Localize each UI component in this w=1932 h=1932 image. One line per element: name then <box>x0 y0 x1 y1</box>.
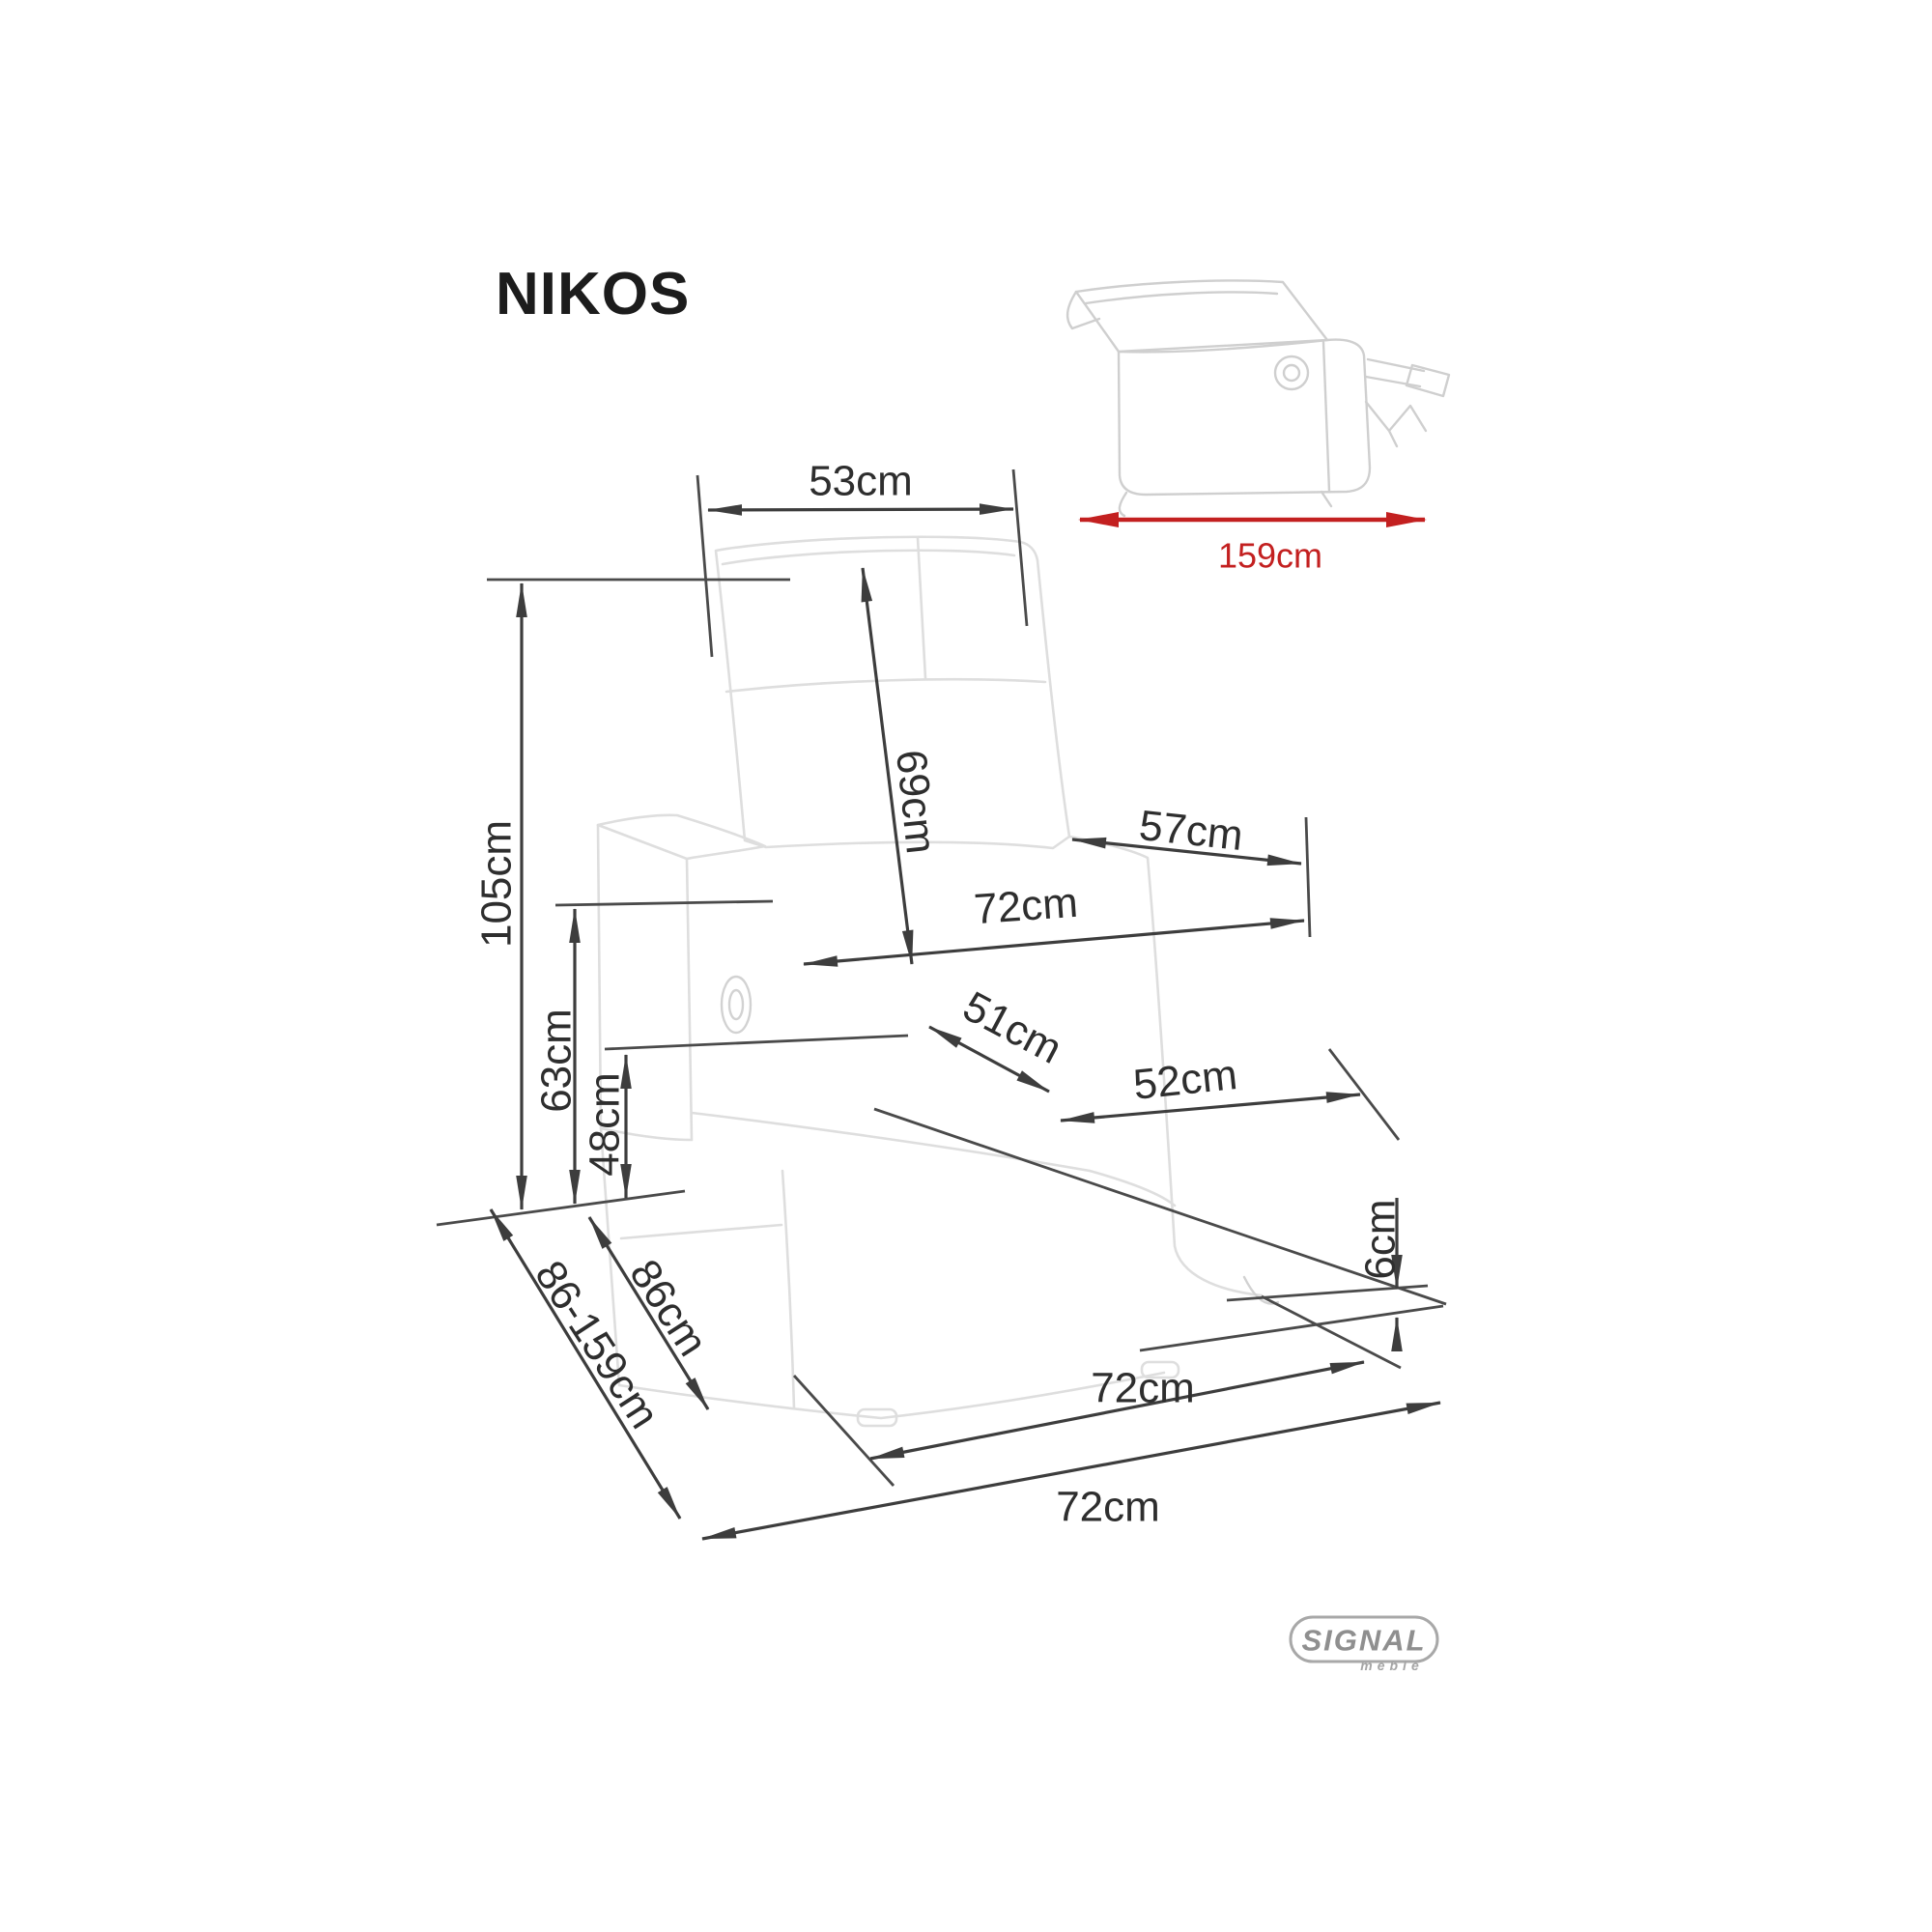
dim-width-at-arms: 72cm <box>804 879 1304 964</box>
dim-total-height: 105cm <box>473 583 523 1209</box>
sketch-backrest-seam-vertical <box>918 538 925 678</box>
sketch-recliner-lever-inner <box>729 990 743 1019</box>
thumb-body <box>1119 340 1370 495</box>
dim-ground-clearance-label: 6cm <box>1357 1199 1405 1279</box>
thumb-lever-circle-inner <box>1284 365 1299 381</box>
ext-right-arm-back <box>1306 817 1310 937</box>
brand-logo: SIGNAL meble <box>1291 1617 1437 1673</box>
dim-width-at-arms-label: 72cm <box>973 879 1080 933</box>
dim-armrest-height: 63cm <box>533 909 581 1204</box>
ext-backrest-right <box>1013 469 1027 626</box>
dimension-diagram-page: NIKOS 159cm 53cm 69cm 105cm <box>0 0 1932 1932</box>
logo-name: SIGNAL <box>1301 1624 1426 1658</box>
dimension-annotations: 53cm 69cm 105cm 63cm 48cm 57cm 72cm <box>473 458 1441 1540</box>
dim-total-height-label: 105cm <box>473 820 521 948</box>
dim-seat-depth: 51cm <box>929 982 1069 1092</box>
ext-seat-top <box>605 1036 908 1049</box>
sketch-left-armrest-top <box>598 815 765 859</box>
ext-ground-left <box>437 1191 685 1225</box>
dim-reclined-length-label: 159cm <box>1218 536 1322 576</box>
sketch-recliner-lever <box>722 977 751 1033</box>
thumb-mechanism <box>1366 402 1426 446</box>
dim-base-width-label: 72cm <box>1091 1365 1195 1412</box>
logo-tagline: meble <box>1360 1658 1423 1673</box>
reclined-side-view-sketch <box>1067 280 1449 516</box>
dim-backrest-length: 69cm <box>863 568 945 964</box>
thumb-headrest-flap <box>1067 292 1099 328</box>
dim-back-to-arm-label: 57cm <box>1137 802 1245 860</box>
dim-ground-clearance: 6cm <box>1357 1198 1405 1341</box>
ext-seat-width-right <box>1329 1049 1399 1140</box>
dim-seat-height-label: 48cm <box>582 1072 629 1177</box>
thumb-body-front-edge <box>1323 342 1329 491</box>
sketch-backrest-piping <box>723 551 1014 564</box>
chair-sketch <box>598 537 1278 1426</box>
dim-overall-width: 72cm <box>702 1403 1440 1539</box>
thumb-footrest <box>1366 359 1424 386</box>
product-title: NIKOS <box>496 261 690 327</box>
dim-reclined-length: 159cm <box>1080 520 1425 576</box>
thumb-lever-circle <box>1275 356 1308 389</box>
dim-backrest-width-arrow <box>708 509 1013 510</box>
ext-base-left <box>794 1376 894 1486</box>
dim-armrest-height-label: 63cm <box>533 1009 581 1113</box>
dim-seat-width-label: 52cm <box>1131 1051 1239 1109</box>
sketch-backrest-seam-horizontal <box>726 679 1045 692</box>
dim-seat-width: 52cm <box>1061 1051 1360 1121</box>
dim-depth-upright-label: 86cm <box>620 1252 717 1365</box>
dim-seat-height: 48cm <box>582 1055 629 1198</box>
dim-back-to-arm: 57cm <box>1072 802 1301 864</box>
dim-overall-width-label: 72cm <box>1056 1484 1160 1531</box>
dim-backrest-width-label: 53cm <box>809 458 913 505</box>
ext-backrest-left <box>697 475 712 657</box>
ext-armrest-top <box>555 901 773 905</box>
thumb-backrest-piping <box>1086 292 1277 303</box>
dim-backrest-width: 53cm <box>708 458 1013 511</box>
dim-seat-depth-label: 51cm <box>955 982 1069 1073</box>
ext-base-right <box>1262 1296 1401 1368</box>
